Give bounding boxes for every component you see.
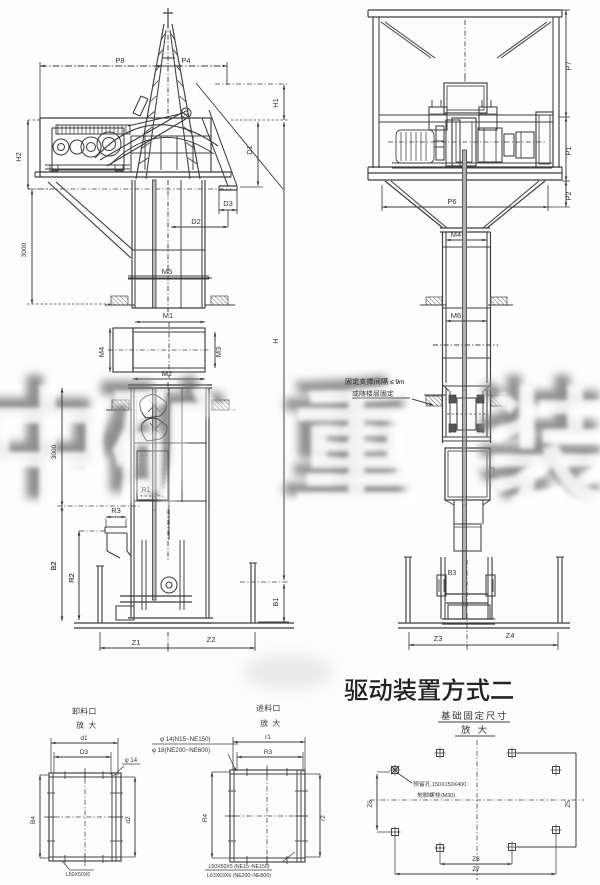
svg-text:P1: P1: [564, 146, 573, 155]
svg-text:(M30): (M30): [441, 793, 455, 799]
svg-text:Z1: Z1: [132, 638, 141, 647]
svg-text:Z6: Z6: [367, 800, 374, 808]
svg-text:P7: P7: [564, 61, 573, 70]
svg-text:M6: M6: [451, 311, 461, 320]
svg-text:M1: M1: [163, 311, 173, 320]
svg-text:B2: B2: [49, 561, 58, 570]
svg-text:r1: r1: [265, 734, 271, 741]
svg-text:3000: 3000: [51, 444, 58, 459]
svg-text:R3: R3: [111, 506, 121, 515]
svg-text:L50X50X5 (NE15~NE150): L50X50X5 (NE15~NE150): [209, 864, 270, 870]
svg-text:L63X63X6 (NE200~NE800): L63X63X6 (NE200~NE800): [207, 873, 271, 879]
svg-text:D2: D2: [191, 217, 201, 226]
svg-text:M2: M2: [162, 369, 172, 378]
svg-text:B1: B1: [271, 597, 280, 606]
svg-text:Z8: Z8: [472, 856, 480, 863]
svg-text:Z7: Z7: [472, 866, 480, 873]
svg-text:R1: R1: [142, 487, 151, 494]
svg-text:H2: H2: [14, 152, 23, 162]
svg-text:≤ 9m: ≤ 9m: [390, 379, 404, 386]
svg-text:P6: P6: [447, 197, 456, 206]
svg-text:Z4: Z4: [506, 631, 515, 640]
svg-text:M4: M4: [97, 347, 106, 357]
svg-text:B3: B3: [448, 570, 457, 577]
svg-text:D3: D3: [80, 749, 89, 756]
svg-text:P8: P8: [115, 56, 124, 65]
svg-text:D1: D1: [245, 145, 254, 155]
svg-text:P2: P2: [564, 191, 573, 200]
svg-text:Z5: Z5: [565, 800, 572, 808]
svg-text:φ 14: φ 14: [125, 758, 138, 764]
svg-text:150X150X400: 150X150X400: [432, 782, 466, 788]
svg-text:3000: 3000: [21, 242, 28, 257]
svg-text:r2: r2: [320, 815, 327, 821]
svg-text:M3: M3: [214, 347, 223, 357]
svg-text:L50X50X6: L50X50X6: [66, 872, 90, 878]
svg-text:Z2: Z2: [207, 635, 216, 644]
svg-text:φ 14(N15~NE150): φ 14(N15~NE150): [160, 736, 211, 743]
svg-text:H1: H1: [271, 98, 280, 108]
svg-text:d2: d2: [125, 816, 132, 824]
svg-text:φ 18(NE200~NE600): φ 18(NE200~NE600): [152, 747, 210, 754]
svg-text:D3: D3: [223, 199, 233, 208]
svg-text:H: H: [271, 338, 280, 343]
svg-text:M4: M4: [451, 230, 461, 239]
svg-text:R3: R3: [264, 749, 273, 756]
svg-text:B4: B4: [30, 816, 37, 824]
svg-text:M5: M5: [162, 267, 172, 276]
svg-text:R4: R4: [202, 813, 209, 822]
svg-text:Z3: Z3: [434, 634, 443, 643]
svg-text:R2: R2: [67, 573, 76, 583]
svg-text:d1: d1: [80, 735, 88, 742]
svg-text:P4: P4: [181, 56, 190, 65]
